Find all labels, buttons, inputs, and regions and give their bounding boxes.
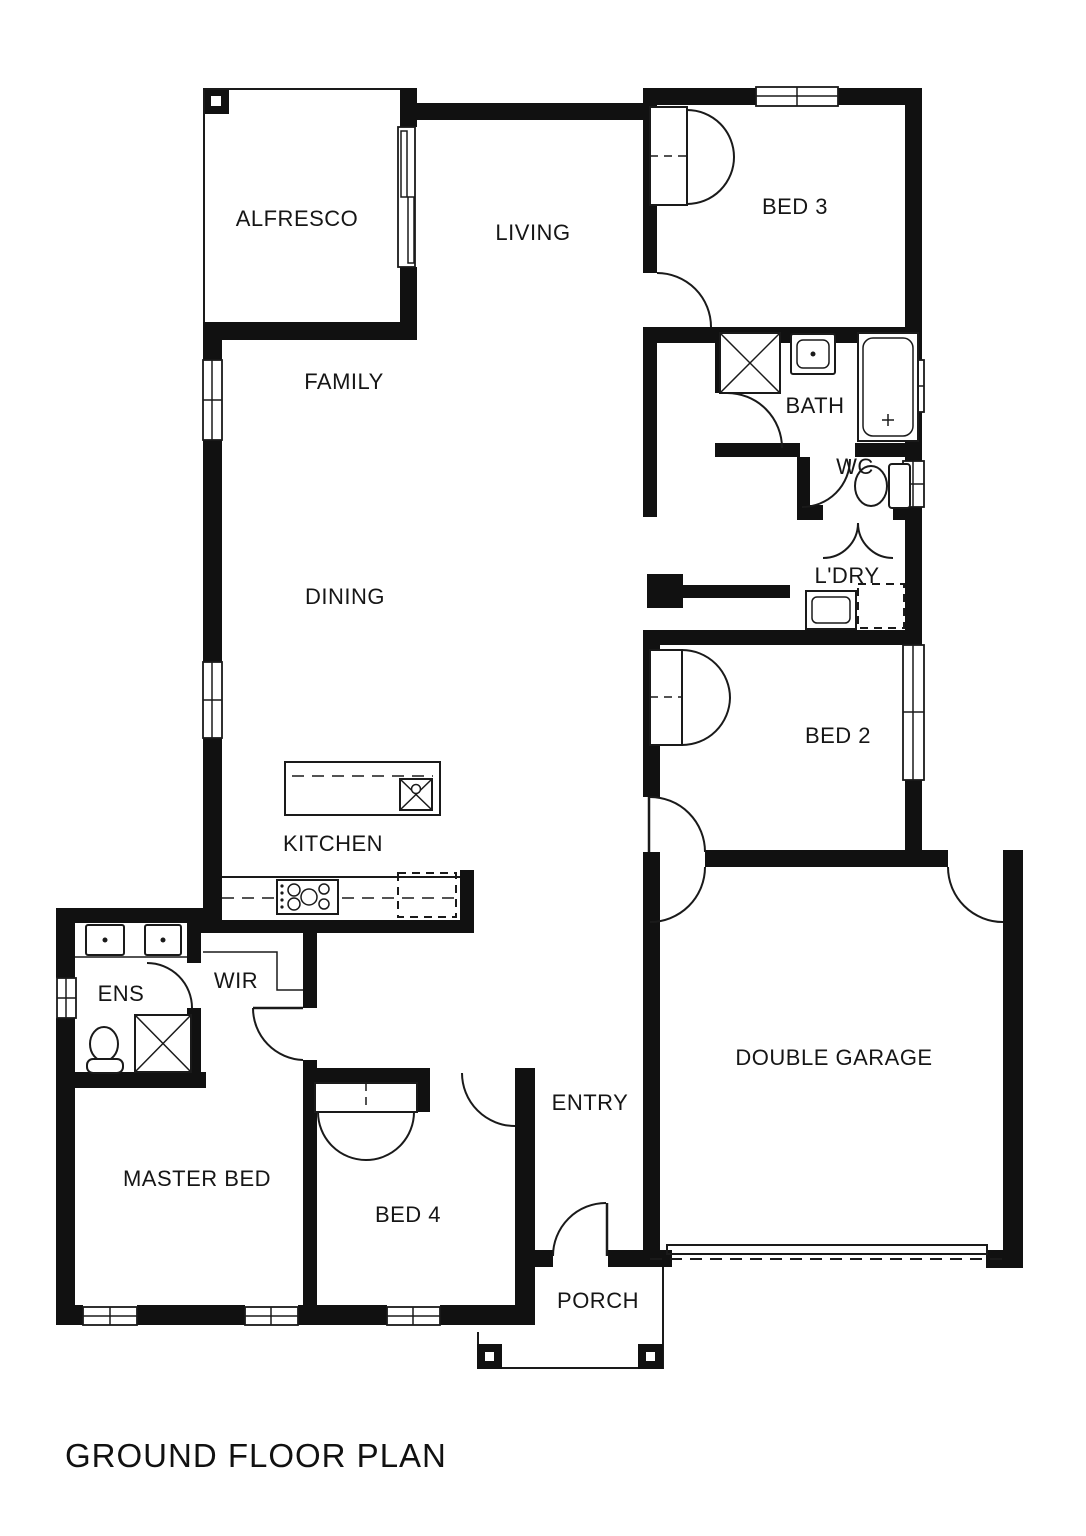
- floor-plan-svg: ALFRESCO LIVING BED 3 FAMILY BATH WC L'D…: [0, 0, 1086, 1536]
- room-label-porch: PORCH: [557, 1288, 639, 1313]
- fridge-space: [398, 873, 456, 917]
- room-label-alfresco: ALFRESCO: [236, 206, 359, 231]
- cooktop-icon: [277, 880, 338, 914]
- room-label-entry: ENTRY: [552, 1090, 629, 1115]
- window: [57, 978, 76, 1018]
- room-label-master: MASTER BED: [123, 1166, 271, 1191]
- front-door-arc: [553, 1203, 606, 1256]
- window: [203, 662, 222, 738]
- room-label-dining: DINING: [305, 584, 385, 609]
- island-sink-icon: [400, 779, 432, 810]
- bathtub-icon: [858, 333, 918, 441]
- ens-toilet-icon: [87, 1027, 123, 1073]
- windows: [57, 87, 924, 1325]
- room-label-living: LIVING: [495, 220, 570, 245]
- bed2-wardrobe: [650, 650, 730, 745]
- bed4-door-arc: [462, 1073, 515, 1126]
- room-label-bed4: BED 4: [375, 1202, 441, 1227]
- window: [245, 1307, 298, 1325]
- bed4-wardrobe: [315, 1083, 417, 1160]
- ens-shower-icon: [135, 1015, 191, 1072]
- kitchen-island: [285, 762, 440, 815]
- window: [83, 1307, 137, 1325]
- room-label-bed3: BED 3: [762, 194, 828, 219]
- room-label-wir: WIR: [214, 968, 258, 993]
- room-label-family: FAMILY: [304, 369, 384, 394]
- bath-vanity-sink-icon: [791, 334, 835, 374]
- appliance-space: [858, 584, 904, 628]
- room-label-ldry: L'DRY: [815, 563, 880, 588]
- sliding-door: [398, 127, 415, 267]
- bed2-door-arc: [650, 797, 705, 852]
- alfresco-edges: [203, 88, 400, 322]
- porch-post-icon: [477, 1344, 502, 1369]
- page-title: GROUND FLOOR PLAN: [65, 1437, 447, 1474]
- bath-door-arc: [727, 393, 782, 448]
- garage-door-arc: [948, 867, 1003, 922]
- master-door-arc: [253, 1008, 303, 1060]
- bed3-wardrobe: [650, 107, 734, 205]
- kitchen-counter: [222, 873, 460, 917]
- window: [387, 1307, 440, 1325]
- window: [903, 645, 924, 780]
- garage-door: [650, 1245, 1002, 1259]
- ens-door-arc: [147, 963, 192, 1008]
- floor-plan: ALFRESCO LIVING BED 3 FAMILY BATH WC L'D…: [0, 0, 1086, 1536]
- ens-vanity: [75, 925, 187, 957]
- shower-icon: [720, 333, 780, 393]
- laundry-tub-icon: [806, 591, 856, 629]
- walls: [56, 88, 1023, 1325]
- room-label-garage: DOUBLE GARAGE: [735, 1045, 932, 1070]
- porch-post-icon: [638, 1344, 663, 1369]
- room-label-bed2: BED 2: [805, 723, 871, 748]
- room-label-wc: WC: [836, 454, 874, 479]
- room-label-kitchen: KITCHEN: [283, 831, 383, 856]
- bed3-door-arc: [657, 273, 711, 327]
- laundry-door-arc: [823, 523, 858, 558]
- laundry-door-arc: [858, 523, 893, 558]
- window: [203, 360, 222, 440]
- room-label-bath: BATH: [785, 393, 844, 418]
- room-label-ens: ENS: [98, 981, 145, 1006]
- window: [756, 87, 838, 106]
